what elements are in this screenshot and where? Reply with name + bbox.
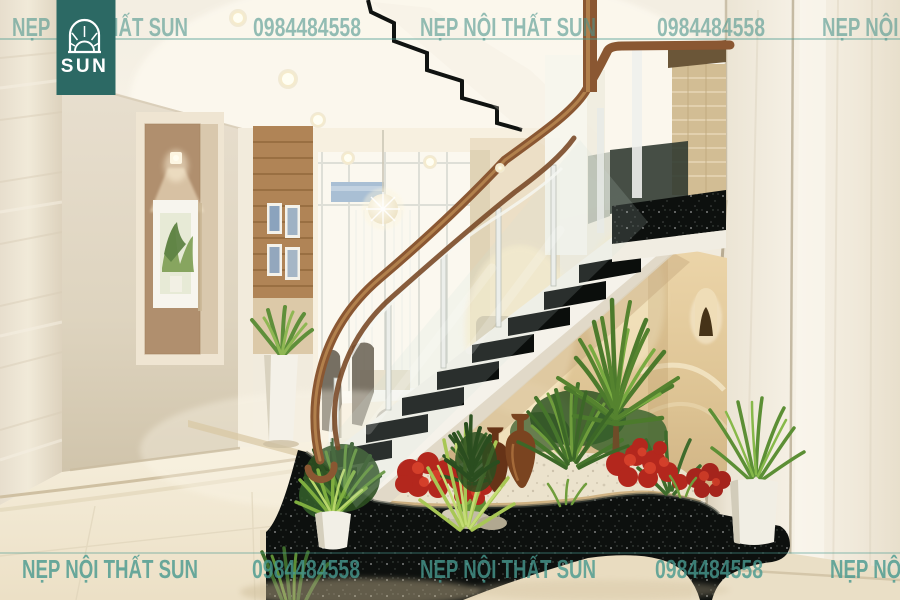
svg-text:NẸP NỘI THẤT SUN: NẸP NỘI THẤT SUN: [830, 554, 900, 584]
svg-text:SUN: SUN: [61, 56, 109, 77]
svg-text:0984484558: 0984484558: [253, 12, 361, 42]
svg-text:NẸP NỘI THẤT SUN: NẸP NỘI THẤT SUN: [420, 12, 596, 42]
svg-text:0984484558: 0984484558: [657, 12, 765, 42]
svg-text:NẸP NỘI THẤT SUN: NẸP NỘI THẤT SUN: [420, 554, 596, 584]
svg-text:0984484558: 0984484558: [655, 554, 763, 584]
svg-text:NẸP NỘI THẤT SUN: NẸP NỘI THẤT SUN: [22, 554, 198, 584]
svg-text:0984484558: 0984484558: [252, 554, 360, 584]
svg-text:NẸP NỘI THẤT SUN: NẸP NỘI THẤT SUN: [822, 12, 900, 42]
